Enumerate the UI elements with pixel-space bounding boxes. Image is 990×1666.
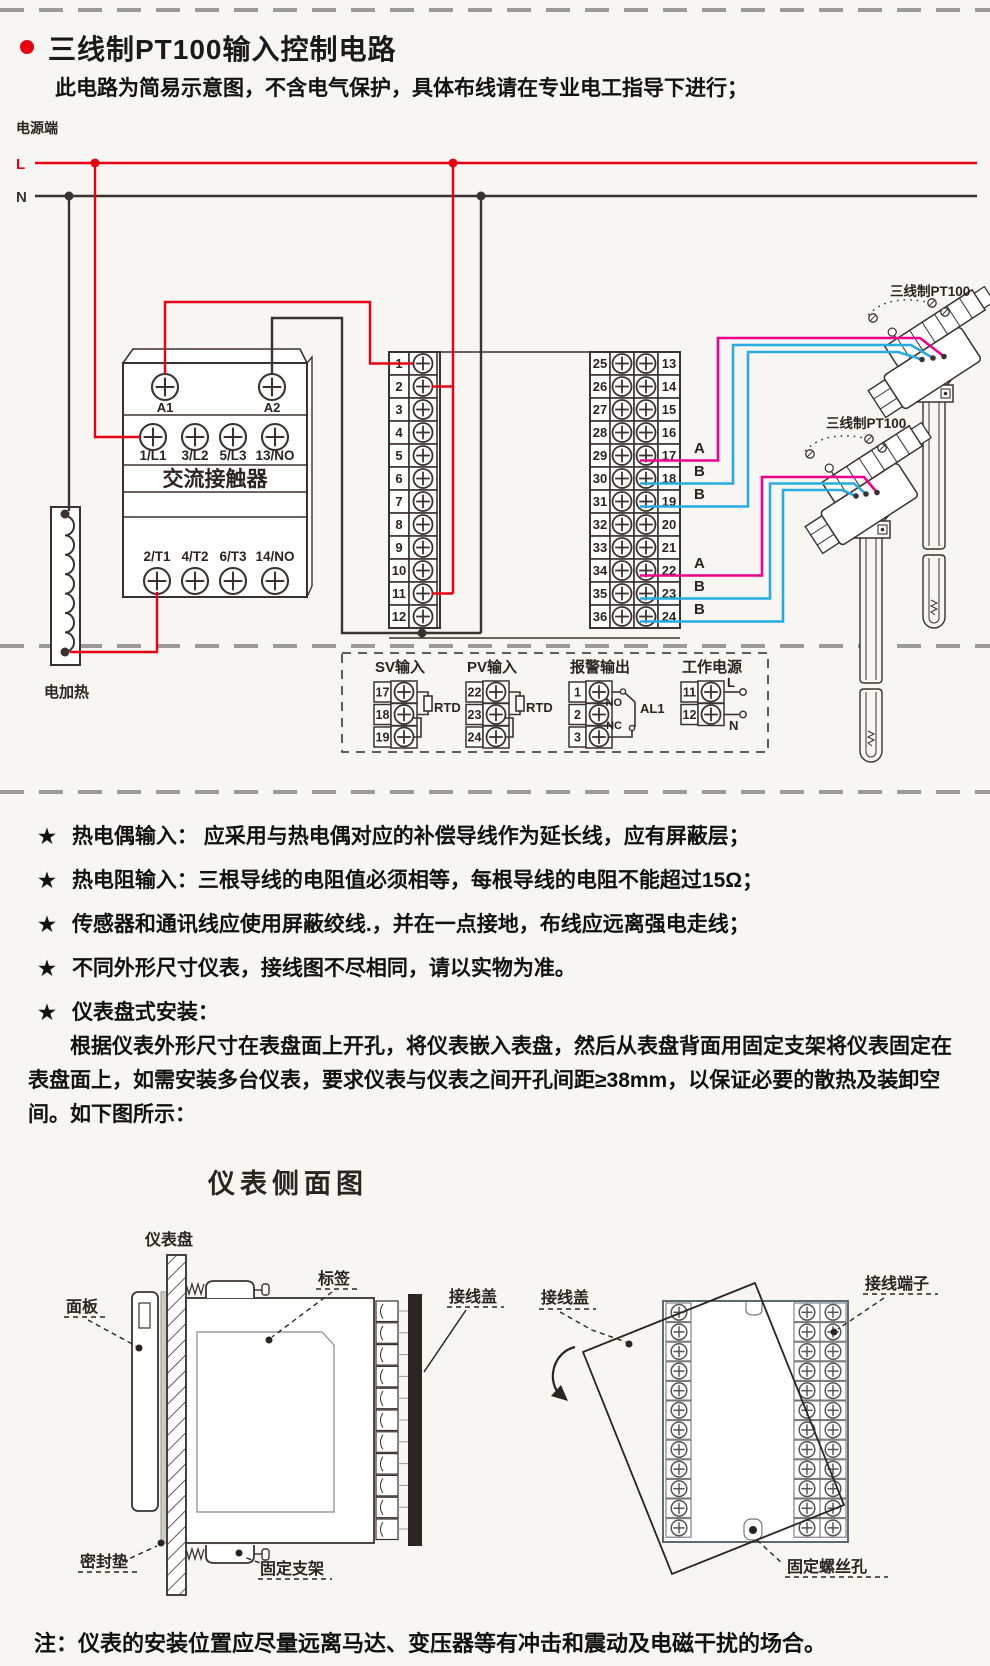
cap-screw-icon: [887, 327, 898, 338]
wire-tag-a: A: [694, 555, 705, 572]
line-n-label: N: [16, 189, 27, 206]
junction-dot: [91, 159, 100, 168]
screw-terminal-icon: [140, 424, 166, 450]
note-text: 热电阻输入：三根导线的电阻值必须相等，每根导线的电阻不能超过15Ω；: [72, 869, 763, 892]
screw-terminal-icon: [671, 1520, 687, 1536]
screw-terminal-icon: [799, 1461, 815, 1477]
probe-tip-tube: [860, 689, 882, 762]
contactor-top-face: [123, 349, 307, 363]
terminal-number: 7: [395, 494, 402, 509]
ac-contactor: A1 A2 1/L1 3/L2 5/L3 13/NO 交流接触器 2/T1 4/…: [123, 349, 312, 597]
side-block-cell: [376, 1519, 398, 1540]
sensor-terminal-dot: [941, 354, 947, 360]
screw-terminal-icon: [825, 1344, 841, 1360]
footer-note: 注：仪表的安装位置应尽量远离马达、变压器等有冲击和震动及电磁干扰的场合。: [34, 1626, 826, 1658]
screw-terminal-icon: [414, 377, 433, 396]
screw-terminal-icon: [152, 374, 178, 400]
screw-terminal-icon: [799, 1383, 815, 1399]
screw-terminal-icon: [259, 374, 285, 400]
title-bullet-icon: [20, 40, 34, 54]
note-text: 传感器和通讯线应使用屏蔽绞线.，并在一点接地，布线应远离强电走线；: [72, 913, 750, 936]
screw-terminal-icon: [395, 683, 414, 702]
terminal-number: 5: [395, 448, 402, 463]
label-sticker: [197, 1332, 334, 1512]
power-terminal-label: 电源端: [16, 120, 58, 136]
screw-terminal-icon: [637, 400, 656, 419]
screw-terminal-icon: [671, 1461, 687, 1477]
contactor-title: 交流接触器: [163, 467, 269, 491]
terminal-number: 20: [662, 517, 676, 532]
wiring-diagram-svg: 电源端 L N A1 A2 1/L1 3/L2 5/L3 13/NO 交流接触器…: [0, 100, 990, 760]
screw-terminal-icon: [414, 607, 433, 626]
screw-terminal-icon: [613, 469, 632, 488]
star-icon: ★: [38, 912, 56, 937]
screw-terminal-icon: [637, 423, 656, 442]
side-block-cell: [376, 1497, 398, 1518]
terminal-number: 11: [683, 686, 696, 700]
leader-line: [424, 1310, 466, 1372]
screw-terminal-icon: [144, 568, 170, 594]
wire-tag-b: B: [694, 601, 705, 618]
terminal-number: 11: [392, 586, 406, 601]
note-item: ★不同外形尺寸仪表，接线图不尽相同，请以实物为准。: [38, 952, 576, 982]
cap-chain-icon: [868, 300, 932, 315]
note-item: ★热电阻输入：三根导线的电阻值必须相等，每根导线的电阻不能超过15Ω；: [38, 864, 763, 894]
screw-terminal-icon: [414, 538, 433, 557]
pointer-dot: [626, 1341, 633, 1348]
terminal-strips: 1234567891011122513261427152816291730183…: [389, 352, 680, 628]
coil-terminal-label: A2: [264, 400, 281, 415]
screw-terminal-icon: [414, 492, 433, 511]
screw-terminal-icon: [799, 1501, 815, 1517]
rotate-arrowhead-icon: [551, 1385, 568, 1401]
note-item: ★传感器和通讯线应使用屏蔽绞线.，并在一点接地，布线应远离强电走线；: [38, 908, 750, 938]
section-dashed-separator: [0, 790, 990, 794]
star-icon: ★: [38, 1000, 56, 1025]
terminal-number: 10: [392, 563, 406, 578]
screw-terminal-icon: [637, 354, 656, 373]
terminal-number: 23: [468, 708, 482, 722]
bracket-screw-head: [262, 1549, 269, 1560]
note-text: 仪表盘式安装：: [72, 1001, 219, 1024]
note-item: ★仪表盘式安装：: [38, 996, 219, 1026]
wire-tag-a: A: [694, 440, 705, 457]
screw-terminal-icon: [671, 1481, 687, 1497]
screw-terminal-icon: [637, 469, 656, 488]
screw-terminal-icon: [671, 1442, 687, 1458]
probe-tube: [923, 402, 945, 549]
open-terminal-icon: [740, 711, 746, 717]
screw-terminal-icon: [613, 607, 632, 626]
bezel-slot: [139, 1303, 150, 1328]
terminal-number: 29: [593, 448, 607, 463]
screw-terminal-icon: [182, 424, 208, 450]
screw-terminal-icon: [637, 584, 656, 603]
screw-terminal-icon: [637, 515, 656, 534]
terminal-number: 33: [593, 540, 607, 555]
screw-terminal-icon: [671, 1363, 687, 1379]
wire-tag-b: B: [694, 578, 705, 595]
pointer-dot: [831, 1329, 838, 1336]
contactor-terminal-label: 5/L3: [219, 448, 247, 463]
contactor-terminal-label: 14/NO: [255, 549, 294, 564]
pointer-dot: [158, 1540, 165, 1547]
terminal-number: 3: [395, 402, 402, 417]
electric-heater: 电加热: [44, 507, 89, 701]
screw-terminal-icon: [613, 538, 632, 557]
bracket-body: [206, 1281, 254, 1298]
open-terminal-icon: [740, 689, 746, 695]
junction-dot: [449, 159, 458, 168]
terminal-number: 22: [468, 686, 482, 700]
screw-terminal-icon: [395, 728, 414, 747]
sensor-terminal-dot: [930, 355, 936, 361]
terminal-number: 4: [395, 425, 403, 440]
top-bracket: [186, 1281, 269, 1298]
junction-dot: [418, 629, 427, 638]
screw-terminal-icon: [799, 1305, 815, 1321]
no-contact-arm: [625, 693, 635, 702]
bottom-bracket: [186, 1545, 269, 1563]
screw-terminal-icon: [262, 568, 288, 594]
pointer-dot: [236, 1550, 243, 1557]
rtd-resistor-icon: [424, 696, 432, 711]
screw-terminal-icon: [702, 705, 721, 724]
bracket-screw-head: [262, 1284, 269, 1295]
side-block-cell: [376, 1454, 398, 1475]
terminal-number: 12: [392, 609, 406, 624]
terminals-label: 接线端子: [865, 1274, 929, 1293]
side-block-cell: [376, 1432, 398, 1453]
screw-terminal-icon: [414, 515, 433, 534]
screw-terminal-icon: [825, 1403, 841, 1419]
side-block-cell: [376, 1410, 398, 1431]
screw-terminal-icon: [487, 705, 506, 724]
terminal-number: 3: [574, 731, 581, 745]
terminal-number: 16: [662, 425, 676, 440]
screw-terminal-icon: [414, 561, 433, 580]
screw-terminal-icon: [414, 354, 433, 373]
note-text: 不同外形尺寸仪表，接线图不尽相同，请以实物为准。: [72, 957, 576, 980]
screw-terminal-icon: [414, 446, 433, 465]
contactor-terminal-label: 6/T3: [219, 549, 247, 564]
screw-terminal-icon: [825, 1481, 841, 1497]
screw-terminal-icon: [799, 1481, 815, 1497]
screw-terminal-icon: [671, 1344, 687, 1360]
contact-pivot: [629, 725, 634, 730]
wire-tag-b: B: [694, 486, 705, 503]
screw-terminal-icon: [613, 354, 632, 373]
bracket-spring-icon: [186, 1284, 204, 1294]
rtd-label: RTD: [434, 700, 461, 715]
side-block-cell: [376, 1345, 398, 1366]
terminal-number: 34: [593, 563, 608, 578]
note-item: ★热电偶输入： 应采用与热电偶对应的补偿导线作为延长线，应有屏蔽层；: [38, 820, 750, 850]
screw-terminal-icon: [799, 1363, 815, 1379]
screw-terminal-icon: [671, 1383, 687, 1399]
screw-terminal-icon: [414, 584, 433, 603]
pointer-dot: [266, 1337, 273, 1344]
leader-line: [88, 1320, 136, 1346]
contactor-terminal-label: 2/T1: [143, 549, 171, 564]
junction-dot: [61, 648, 70, 657]
terminal-number: 1: [574, 686, 581, 700]
leader-line: [560, 1312, 626, 1342]
terminal-number: 19: [376, 731, 390, 745]
screw-terminal-icon: [414, 400, 433, 419]
terminal-number: 6: [395, 471, 402, 486]
screw-terminal-icon: [487, 728, 506, 747]
star-icon: ★: [38, 824, 56, 849]
screw-terminal-icon: [262, 424, 288, 450]
pointer-dot: [749, 1526, 757, 1534]
bracket-label: 固定支架: [260, 1559, 324, 1578]
terminal-number: 12: [683, 708, 697, 722]
screw-terminal-icon: [220, 424, 246, 450]
screw-terminal-icon: [220, 568, 246, 594]
terminal-number: 17: [376, 686, 390, 700]
heater-body: [51, 507, 80, 665]
screw-terminal-icon: [613, 561, 632, 580]
screw-terminal-icon: [613, 515, 632, 534]
note-text: 热电偶输入： 应采用与热电偶对应的补偿导线作为延长线，应有屏蔽层；: [72, 825, 750, 848]
heater-label: 电加热: [44, 683, 89, 701]
contactor-terminal-label: 3/L2: [181, 448, 208, 463]
leader-line: [757, 1540, 783, 1564]
screw-terminal-icon: [702, 683, 721, 702]
side-block-cell: [376, 1475, 398, 1496]
screw-terminal-icon: [395, 705, 414, 724]
terminal-number: 21: [662, 540, 676, 555]
front-panel-label: 面板: [66, 1297, 99, 1316]
screw-terminal-icon: [799, 1324, 815, 1340]
rtd-label: RTD: [526, 700, 553, 715]
clamp-screw-dot: [881, 528, 885, 532]
side-terminal-blocks: [376, 1301, 408, 1540]
gasket-label: 密封垫: [79, 1552, 128, 1571]
star-icon: ★: [38, 868, 56, 893]
sensor-terminal-dot: [874, 490, 880, 496]
screw-terminal-icon: [825, 1363, 841, 1379]
panel-board-hatch: [167, 1255, 186, 1595]
nc-label: NC: [606, 720, 622, 732]
screw-terminal-icon: [825, 1442, 841, 1458]
screw-terminal-icon: [637, 446, 656, 465]
screw-terminal-icon: [799, 1344, 815, 1360]
terminal-number: 24: [468, 731, 482, 745]
screw-terminal-icon: [825, 1520, 841, 1536]
terminal-number: 9: [395, 540, 402, 555]
screw-terminal-icon: [613, 400, 632, 419]
terminal-number: 25: [593, 356, 607, 371]
io-group-title: 报警输出: [570, 658, 630, 676]
power-rails: 电源端 L N: [16, 120, 977, 206]
sensor-terminal-dot: [853, 493, 859, 499]
contactor-terminal-label: 13/NO: [255, 448, 294, 463]
screw-terminal-icon: [671, 1305, 687, 1321]
cap-screw-icon: [824, 463, 835, 474]
terminal-number: 8: [395, 517, 402, 532]
probe-tip-tube: [923, 555, 945, 628]
terminal-number: 14: [662, 379, 677, 394]
terminal-number: 28: [593, 425, 607, 440]
cap-chain-icon: [805, 436, 869, 451]
io-group-title: SV输入: [375, 658, 425, 676]
screw-terminal-icon: [414, 423, 433, 442]
terminal-cover-label: 接线盖: [449, 1287, 497, 1306]
rear-cover-label: 接线盖: [541, 1288, 589, 1307]
lower-sensor-label: 三线制PT100: [826, 415, 906, 431]
side-block-cell: [376, 1323, 398, 1344]
screw-terminal-icon: [825, 1501, 841, 1517]
side-view-diagram: 仪表盘: [64, 1230, 504, 1595]
pt100-sensors: [783, 273, 990, 762]
panel-board-label: 仪表盘: [144, 1230, 193, 1249]
upper-sensor-label: 三线制PT100: [890, 283, 970, 299]
relay-label: AL1: [640, 701, 665, 716]
installation-diagram-svg: 仪表盘: [0, 1150, 990, 1620]
terminal-number: 27: [593, 402, 607, 417]
terminal-number: 18: [376, 708, 390, 722]
screw-terminal-icon: [613, 446, 632, 465]
terminal-number: 35: [593, 586, 607, 601]
side-block-cell: [376, 1388, 398, 1409]
terminal-number: 36: [593, 609, 607, 624]
bracket-spring-icon: [186, 1549, 204, 1559]
side-block-cell: [376, 1301, 398, 1322]
screw-terminal-icon: [637, 538, 656, 557]
install-paragraph: 根据仪表外形尺寸在表盘面上开孔，将仪表嵌入表盘，然后从表盘背面用固定支架将仪表固…: [28, 1030, 966, 1133]
screw-terminal-icon: [613, 377, 632, 396]
sticker-label: 标签: [317, 1269, 351, 1288]
screw-terminal-icon: [487, 683, 506, 702]
terminal-number: 13: [662, 356, 676, 371]
screw-terminal-icon: [637, 607, 656, 626]
sensor-terminal-dot: [919, 357, 925, 363]
page-title: 三线制PT100输入控制电路: [48, 28, 397, 68]
supply-l-label: L: [727, 675, 735, 690]
terminal-number: 15: [662, 402, 676, 417]
contactor-terminal-label: 1/L1: [139, 448, 167, 463]
terminal-number: 2: [574, 708, 581, 722]
star-icon: ★: [38, 956, 56, 981]
coil-terminal-label: A1: [157, 400, 174, 415]
screw-terminal-icon: [671, 1324, 687, 1340]
probe-tube: [860, 535, 882, 683]
terminal-number: 31: [593, 494, 607, 509]
screw-terminal-icon: [799, 1442, 815, 1458]
terminal-number: 2: [395, 379, 402, 394]
wire-t1-to-heater: [70, 592, 157, 652]
screw-terminal-icon: [613, 584, 632, 603]
pointer-dot: [136, 1345, 143, 1352]
screw-terminal-icon: [613, 492, 632, 511]
bracket-body: [206, 1545, 254, 1563]
screw-terminal-icon: [825, 1305, 841, 1321]
screw-terminal-icon: [671, 1501, 687, 1517]
page-subtitle: 此电路为简易示意图，不含电气保护，具体布线请在专业电工指导下进行；: [55, 72, 748, 102]
rtd-resistor-icon: [516, 696, 524, 711]
manual-page: { "header": { "title": "三线制PT100输入控制电路",…: [0, 0, 990, 1666]
terminal-number: 30: [593, 471, 607, 486]
screw-terminal-icon: [637, 492, 656, 511]
top-dashed-separator: [0, 8, 990, 12]
screw-terminal-icon: [825, 1422, 841, 1438]
terminal-number: 32: [593, 517, 607, 532]
screw-terminal-icon: [414, 469, 433, 488]
screw-terminal-icon: [613, 423, 632, 442]
screw-terminal-icon: [825, 1383, 841, 1399]
io-groups: SV输入171819RTDPV输入222324RTD报警输出123NONCAL1…: [374, 658, 746, 748]
terminal-number: 26: [593, 379, 607, 394]
line-l-label: L: [16, 156, 25, 173]
screw-terminal-icon: [671, 1422, 687, 1438]
screw-terminal-icon: [637, 377, 656, 396]
clamp-screw-dot: [944, 392, 948, 396]
wire-tag-b: B: [694, 463, 705, 480]
wire-tags: A B B A B B: [694, 440, 705, 618]
no-label: NO: [606, 697, 623, 709]
screw-terminal-icon: [182, 568, 208, 594]
io-group-title: 工作电源: [682, 658, 742, 676]
terminal-cover-plate: [408, 1294, 422, 1546]
io-group-title: PV输入: [467, 658, 517, 676]
screw-hole-label: 固定螺丝孔: [787, 1557, 867, 1576]
rear-view-diagram: 接线盖 接线端子 固定螺丝孔: [539, 1274, 938, 1577]
side-block-cell: [376, 1366, 398, 1387]
junction-dot: [65, 192, 74, 201]
rotate-arrow-icon: [553, 1347, 575, 1397]
junction-dot: [477, 192, 486, 201]
screw-terminal-icon: [671, 1403, 687, 1419]
supply-n-label: N: [729, 718, 738, 733]
screw-terminal-icon: [637, 561, 656, 580]
sensor-terminal-dot: [863, 491, 869, 497]
contactor-terminal-label: 4/T2: [181, 549, 208, 564]
